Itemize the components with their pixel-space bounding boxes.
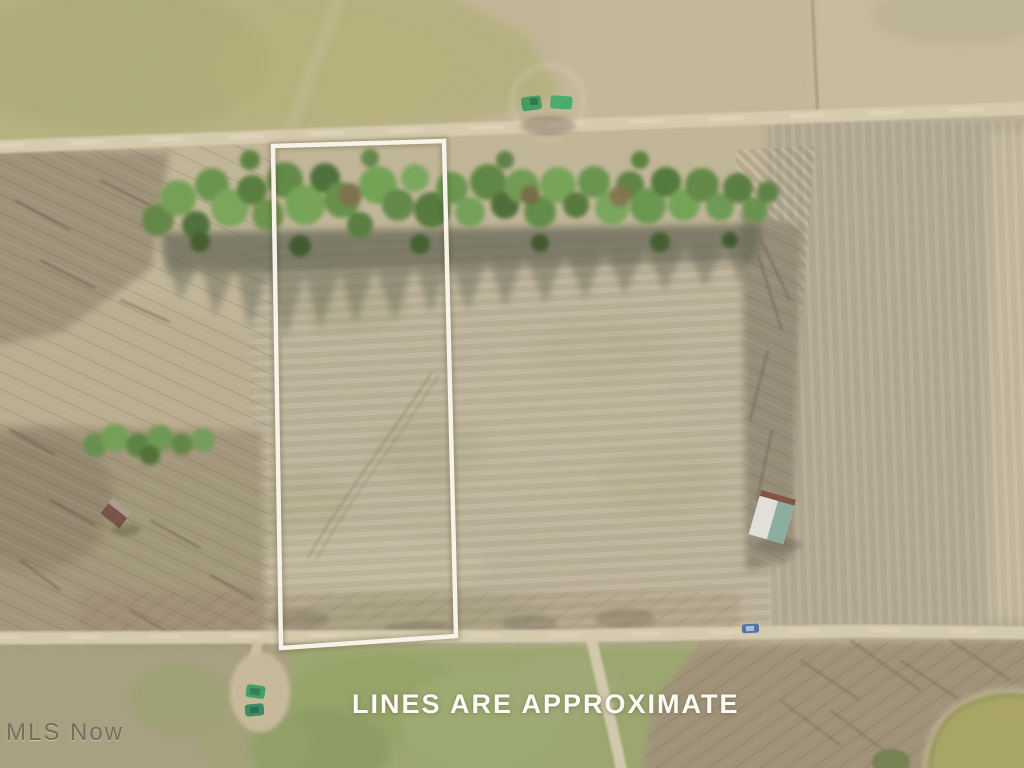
photo-grain <box>0 0 1024 768</box>
aerial-photo: LINES ARE APPROXIMATE MLS Now <box>0 0 1024 768</box>
approximate-lines-caption: LINES ARE APPROXIMATE <box>352 689 740 720</box>
aerial-scene <box>0 0 1024 768</box>
mls-watermark: MLS Now <box>6 719 124 747</box>
